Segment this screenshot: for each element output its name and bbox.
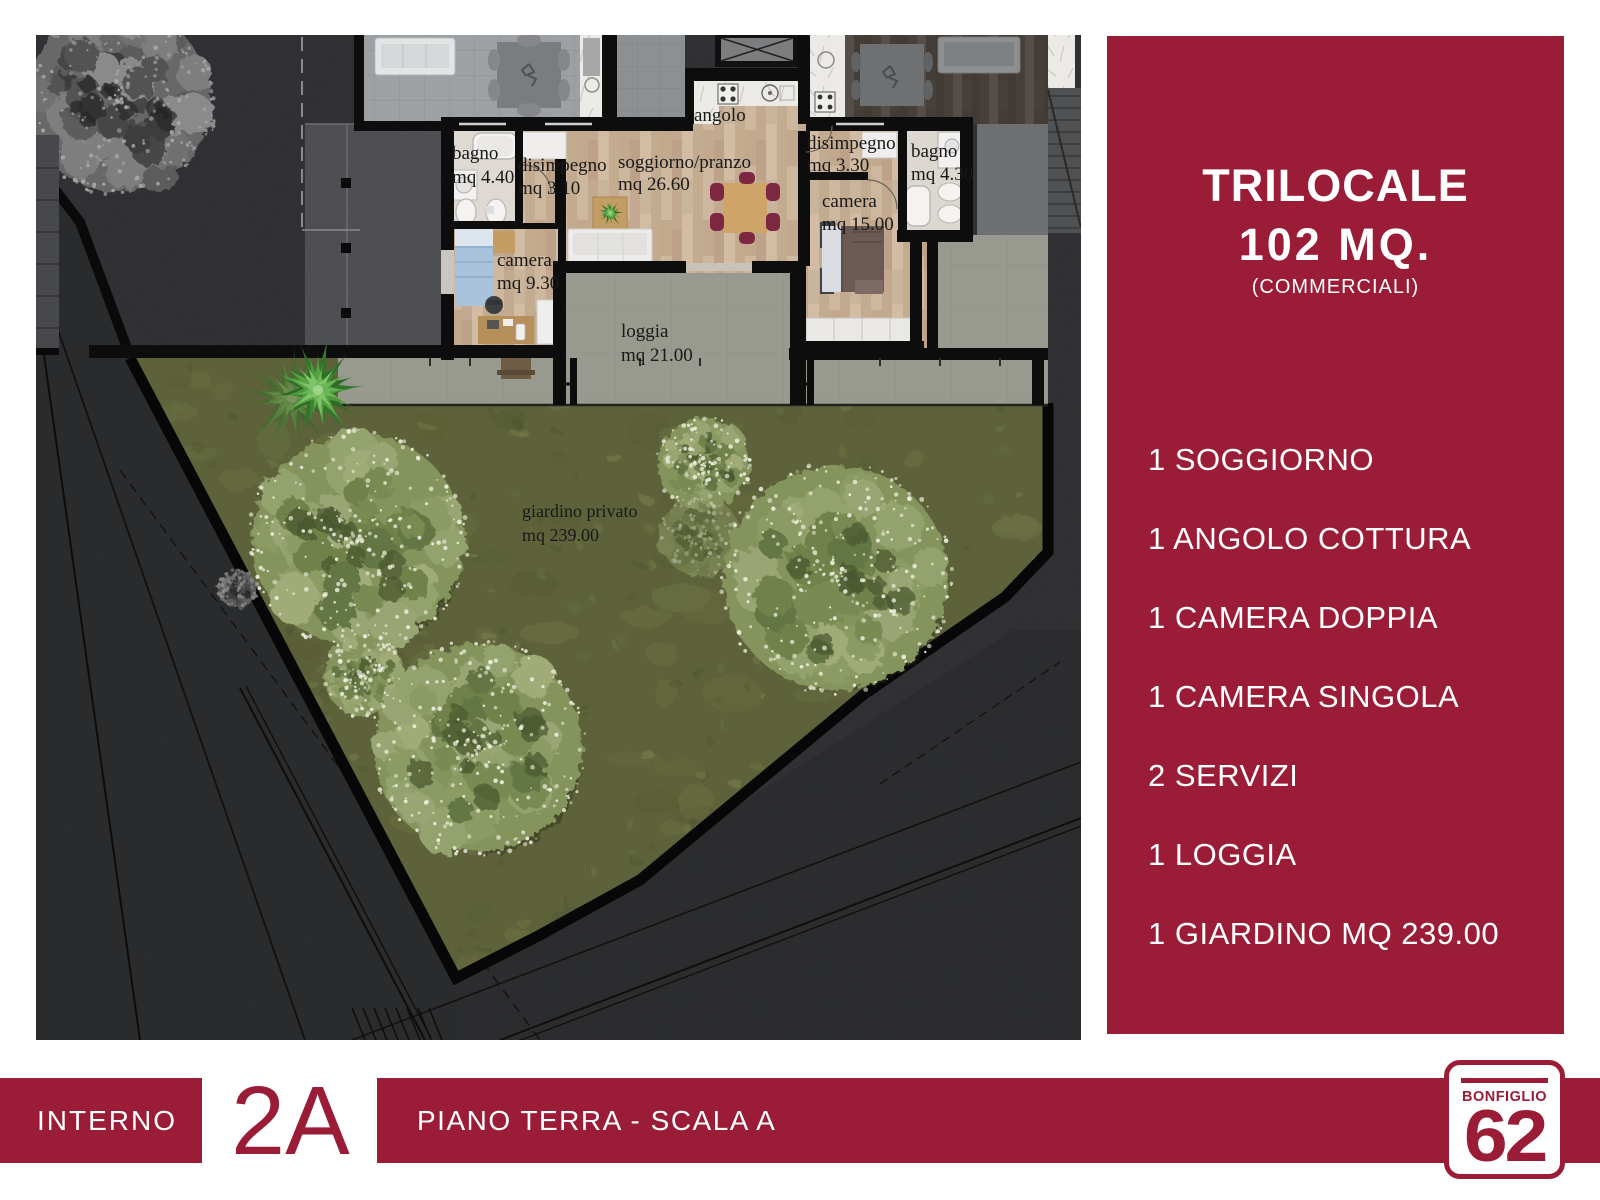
svg-text:giardino privato: giardino privato (522, 501, 637, 521)
svg-text:mq 4.30: mq 4.30 (911, 164, 973, 185)
svg-text:mq 3.30: mq 3.30 (807, 155, 869, 176)
svg-text:camera: camera (822, 191, 877, 212)
svg-text:mq 21.00: mq 21.00 (621, 345, 693, 366)
svg-text:disimpegno: disimpegno (518, 155, 607, 176)
svg-text:mq 15.00: mq 15.00 (822, 214, 894, 235)
svg-text:disimpegno: disimpegno (807, 133, 896, 154)
svg-text:mq 4.40: mq 4.40 (452, 167, 514, 188)
svg-text:bagno: bagno (911, 141, 957, 162)
svg-text:mq 9.30: mq 9.30 (497, 273, 559, 294)
svg-text:soggiorno/pranzo: soggiorno/pranzo (618, 152, 751, 173)
svg-text:bagno: bagno (452, 143, 498, 164)
svg-text:angolo: angolo (694, 105, 746, 126)
svg-text:mq 3.10: mq 3.10 (518, 178, 580, 199)
svg-text:camera: camera (497, 250, 552, 271)
svg-text:loggia: loggia (621, 321, 669, 342)
svg-text:mq 239.00: mq 239.00 (522, 525, 599, 545)
svg-text:mq 26.60: mq 26.60 (618, 174, 690, 195)
